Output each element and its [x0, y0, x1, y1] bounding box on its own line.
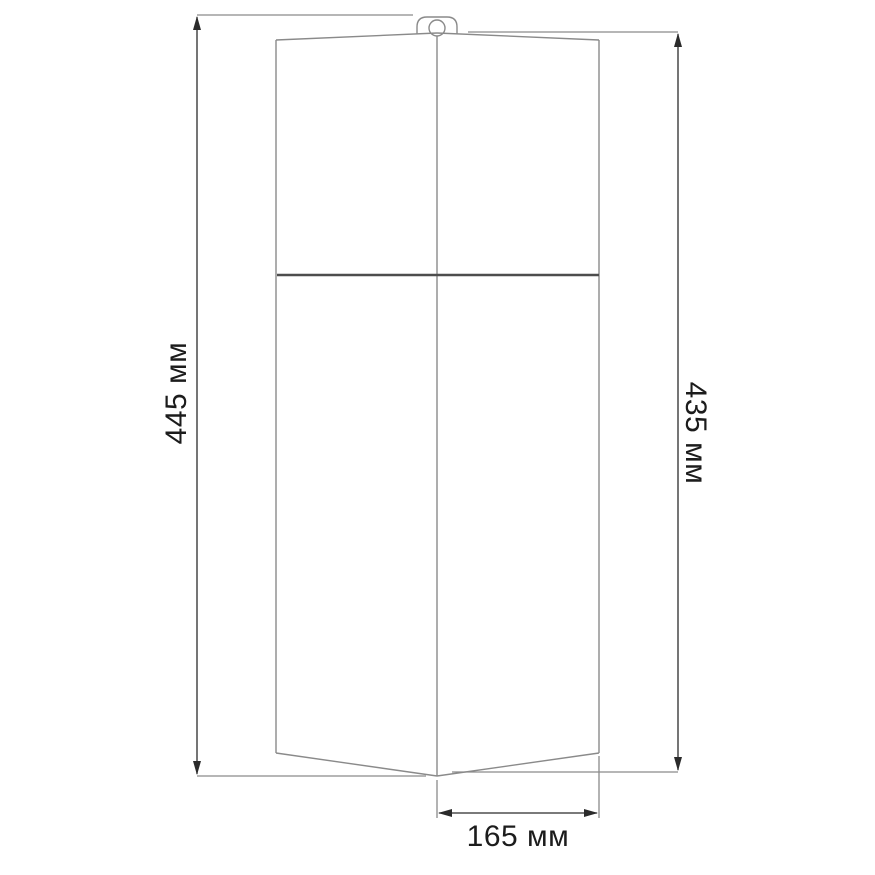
body-top-right-edge	[437, 33, 599, 40]
body-top-left-edge	[276, 33, 437, 40]
dimension-diagram: 445 мм 435 мм 165 мм	[0, 0, 875, 875]
body-bottom-left-edge	[276, 753, 437, 776]
bottom-width-label: 165 мм	[467, 820, 570, 853]
total-height-label: 445 мм	[160, 342, 193, 445]
body-height-label: 435 мм	[679, 382, 712, 485]
dimension-drawing-canvas: 445 мм 435 мм 165 мм	[0, 0, 875, 875]
object-outline	[276, 17, 599, 776]
